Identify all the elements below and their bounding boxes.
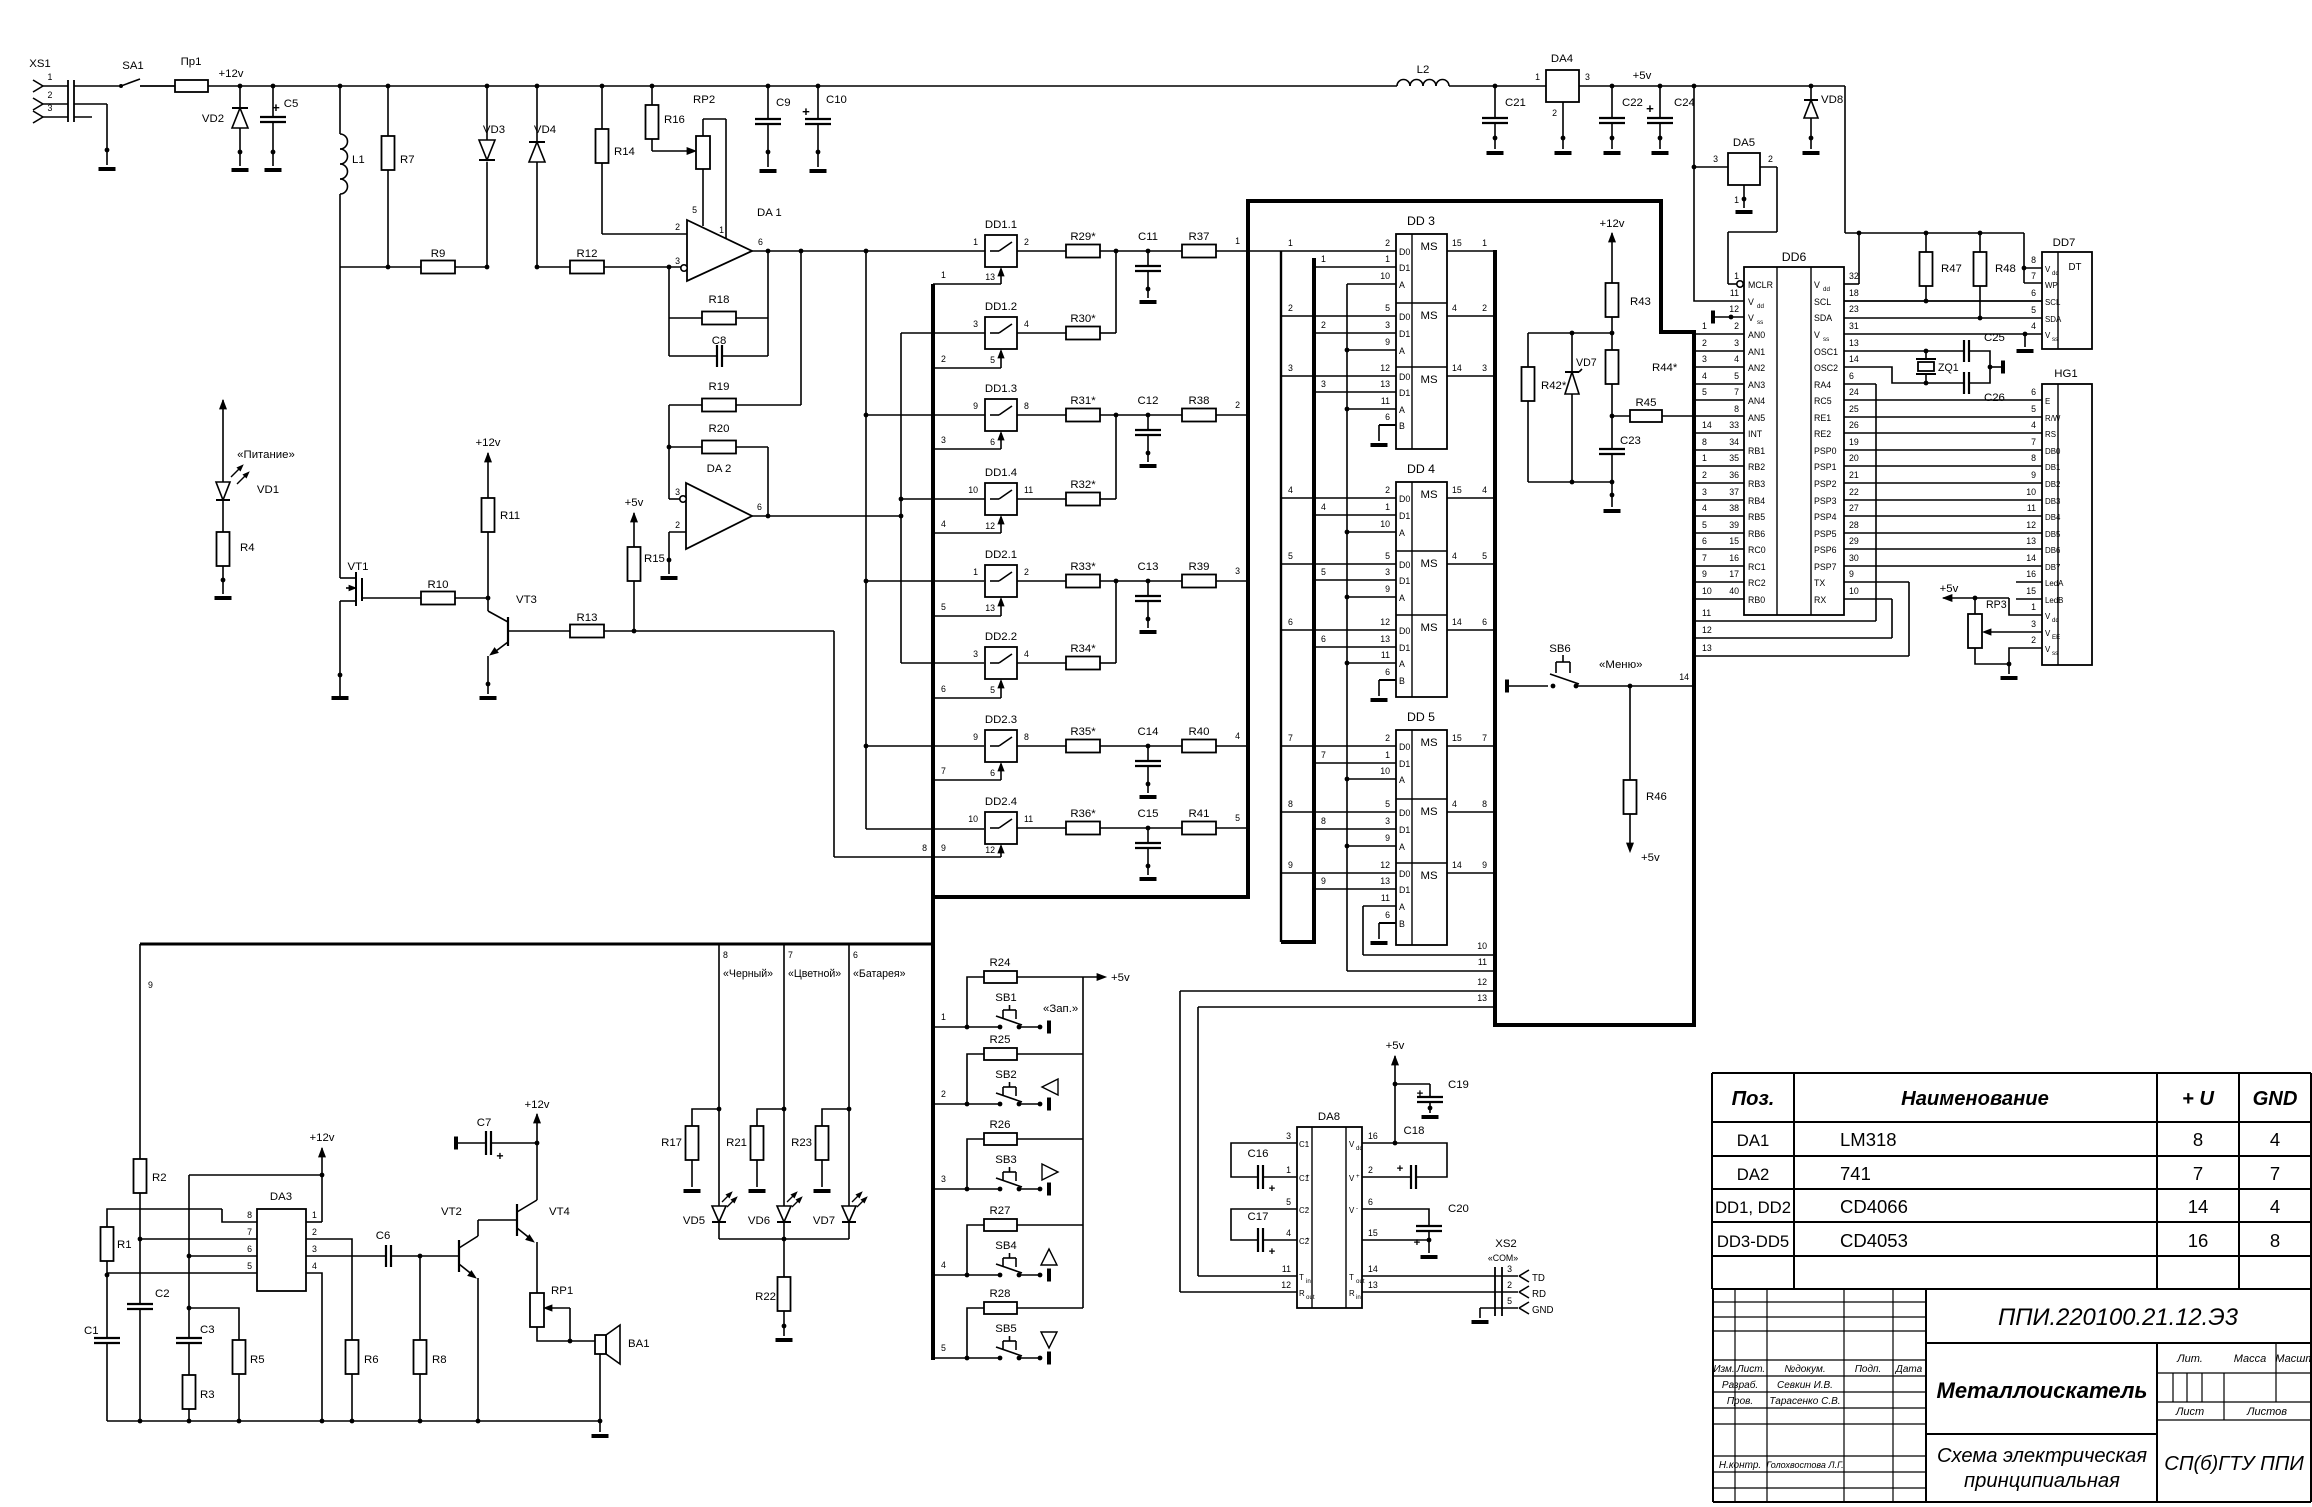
- svg-text:R34*: R34*: [1070, 643, 1096, 655]
- svg-text:R: R: [1349, 1289, 1355, 1298]
- svg-text:5: 5: [692, 205, 697, 215]
- svg-text:3: 3: [1482, 363, 1487, 373]
- svg-text:CD4066: CD4066: [1840, 1196, 1908, 1217]
- svg-text:9: 9: [973, 732, 978, 742]
- svg-text:1: 1: [1702, 453, 1707, 463]
- svg-text:10: 10: [968, 485, 978, 495]
- svg-text:VD1: VD1: [257, 484, 279, 496]
- svg-text:4: 4: [1702, 503, 1707, 513]
- svg-text:7: 7: [1482, 733, 1487, 743]
- svg-text:R15: R15: [644, 553, 665, 565]
- svg-text:3: 3: [312, 1244, 317, 1254]
- svg-text:C23: C23: [1620, 435, 1641, 447]
- svg-text:VD7: VD7: [1576, 357, 1597, 369]
- svg-text:VT1: VT1: [348, 561, 369, 573]
- svg-text:7: 7: [2193, 1163, 2203, 1184]
- svg-text:«Зап.»: «Зап.»: [1043, 1003, 1078, 1015]
- svg-text:5: 5: [1385, 303, 1390, 313]
- svg-text:AN2: AN2: [1748, 363, 1765, 373]
- svg-text:D1: D1: [1399, 511, 1410, 521]
- svg-text:2: 2: [1024, 237, 1029, 247]
- svg-text:V: V: [1814, 330, 1820, 340]
- svg-text:R42*: R42*: [1541, 380, 1567, 392]
- svg-text:MS: MS: [1420, 806, 1437, 818]
- svg-text:D0: D0: [1399, 626, 1410, 636]
- svg-text:«Цветной»: «Цветной»: [788, 968, 841, 980]
- svg-text:4: 4: [1734, 354, 1739, 364]
- svg-text:14: 14: [1679, 672, 1689, 682]
- svg-text:+5v: +5v: [1940, 583, 1959, 595]
- svg-text:9: 9: [1702, 569, 1707, 579]
- svg-text:C10: C10: [826, 94, 847, 106]
- svg-text:dd: dd: [1356, 1145, 1363, 1152]
- svg-text:9: 9: [1385, 833, 1390, 843]
- svg-text:7: 7: [2270, 1163, 2280, 1184]
- svg-text:DD3-DD5: DD3-DD5: [1717, 1232, 1789, 1251]
- svg-text:6: 6: [1321, 634, 1326, 644]
- svg-text:2: 2: [1368, 1165, 1373, 1175]
- svg-text:6: 6: [990, 437, 995, 447]
- svg-text:D1: D1: [1399, 263, 1410, 273]
- svg-text:R28: R28: [990, 1288, 1011, 1300]
- svg-text:DA3: DA3: [270, 1191, 292, 1203]
- svg-text:GND: GND: [2253, 1088, 2298, 1110]
- svg-text:1: 1: [941, 1012, 946, 1022]
- svg-text:MS: MS: [1420, 558, 1437, 570]
- svg-text:12: 12: [985, 845, 995, 855]
- svg-text:6: 6: [1368, 1197, 1373, 1207]
- svg-text:D1: D1: [1399, 825, 1410, 835]
- svg-text:2: 2: [1552, 108, 1557, 118]
- svg-text:9: 9: [2031, 470, 2036, 480]
- svg-text:D0: D0: [1399, 494, 1410, 504]
- svg-text:Дата: Дата: [1895, 1364, 1923, 1375]
- svg-text:VD6: VD6: [748, 1215, 770, 1227]
- svg-text:1: 1: [2031, 602, 2036, 612]
- svg-text:3: 3: [675, 256, 680, 266]
- svg-text:33: 33: [1729, 420, 1739, 430]
- svg-text:6: 6: [757, 502, 762, 512]
- svg-text:Лист.: Лист.: [1736, 1364, 1765, 1375]
- svg-text:R7: R7: [400, 154, 415, 166]
- svg-text:10: 10: [1702, 586, 1712, 596]
- svg-text:3: 3: [1286, 1131, 1291, 1141]
- svg-text:2: 2: [1385, 485, 1390, 495]
- svg-text:+12v: +12v: [524, 1099, 549, 1111]
- svg-text:V: V: [2045, 331, 2051, 340]
- svg-text:1: 1: [719, 225, 724, 235]
- svg-text:11: 11: [1024, 485, 1033, 495]
- svg-text:Масшт: Масшт: [2275, 1353, 2312, 1365]
- svg-text:8: 8: [247, 1210, 252, 1220]
- svg-text:10: 10: [1380, 766, 1390, 776]
- svg-text:+: +: [1414, 1237, 1421, 1249]
- svg-text:V: V: [2045, 265, 2051, 274]
- svg-text:+5v: +5v: [1633, 70, 1652, 82]
- svg-text:R4: R4: [240, 542, 255, 554]
- svg-text:22: 22: [1849, 487, 1859, 497]
- svg-text:R33*: R33*: [1070, 561, 1096, 573]
- svg-text:R11: R11: [500, 510, 520, 522]
- svg-text:R24: R24: [990, 957, 1011, 969]
- svg-text:№докум.: №докум.: [1784, 1364, 1825, 1375]
- svg-text:10: 10: [1380, 271, 1390, 281]
- svg-text:AN5: AN5: [1748, 413, 1765, 423]
- svg-text:12: 12: [1380, 617, 1390, 627]
- svg-text:9: 9: [1321, 876, 1326, 886]
- svg-text:A: A: [1399, 280, 1405, 290]
- svg-text:4: 4: [1235, 731, 1240, 741]
- svg-text:DB1: DB1: [2045, 463, 2060, 472]
- svg-text:-: -: [1306, 1205, 1308, 1212]
- svg-text:C6: C6: [376, 1230, 391, 1242]
- svg-text:C5: C5: [284, 98, 299, 110]
- svg-text:V: V: [2045, 612, 2051, 621]
- svg-text:1: 1: [1288, 238, 1293, 248]
- svg-text:V: V: [2045, 645, 2051, 654]
- svg-text:+12v: +12v: [1599, 218, 1624, 230]
- svg-text:R1: R1: [117, 1239, 132, 1251]
- svg-text:C20: C20: [1448, 1203, 1469, 1215]
- svg-text:8: 8: [1288, 799, 1293, 809]
- svg-text:6: 6: [941, 684, 946, 694]
- svg-text:A: A: [1399, 405, 1405, 415]
- svg-text:5: 5: [1321, 567, 1326, 577]
- svg-text:7: 7: [788, 950, 793, 960]
- svg-text:R22: R22: [755, 1291, 776, 1303]
- svg-text:+: +: [1417, 1088, 1424, 1100]
- svg-text:RP2: RP2: [693, 94, 715, 106]
- svg-text:3: 3: [1385, 567, 1390, 577]
- svg-text:16: 16: [1729, 553, 1739, 563]
- svg-text:13: 13: [1380, 379, 1390, 389]
- svg-text:11: 11: [1381, 396, 1390, 406]
- svg-text:1: 1: [48, 72, 53, 82]
- svg-text:R: R: [1299, 1289, 1305, 1298]
- svg-text:1: 1: [1235, 236, 1240, 246]
- svg-text:+: +: [1269, 1246, 1276, 1258]
- svg-text:DT: DT: [2069, 262, 2082, 273]
- svg-text:RB5: RB5: [1748, 512, 1765, 522]
- svg-text:5: 5: [1288, 551, 1293, 561]
- svg-text:12: 12: [1281, 1280, 1291, 1290]
- svg-text:PSP4: PSP4: [1814, 512, 1837, 522]
- svg-text:SB3: SB3: [995, 1154, 1017, 1166]
- svg-text:13: 13: [985, 603, 995, 613]
- svg-text:14: 14: [1849, 354, 1859, 364]
- svg-text:E: E: [2045, 397, 2050, 406]
- svg-text:DD 5: DD 5: [1407, 710, 1435, 724]
- svg-text:+12v: +12v: [309, 1132, 334, 1144]
- svg-text:Подп.: Подп.: [1855, 1364, 1882, 1375]
- svg-text:27: 27: [1849, 503, 1859, 513]
- svg-text:+5v: +5v: [1641, 852, 1660, 864]
- svg-text:out: out: [1306, 1294, 1315, 1301]
- svg-text:13: 13: [1477, 993, 1487, 1003]
- svg-text:DA4: DA4: [1551, 53, 1573, 65]
- svg-text:T: T: [1299, 1273, 1304, 1282]
- svg-text:RA4: RA4: [1814, 380, 1831, 390]
- svg-text:6: 6: [2031, 387, 2036, 397]
- svg-text:C24: C24: [1674, 97, 1695, 109]
- svg-text:3: 3: [1321, 379, 1326, 389]
- svg-text:D0: D0: [1399, 312, 1410, 322]
- svg-text:11: 11: [1730, 288, 1739, 298]
- svg-text:PSP6: PSP6: [1814, 545, 1837, 555]
- svg-text:11: 11: [1024, 814, 1033, 824]
- svg-text:2: 2: [1385, 733, 1390, 743]
- svg-text:DD 4: DD 4: [1407, 462, 1435, 476]
- svg-text:R18: R18: [709, 294, 730, 306]
- svg-text:DD1, DD2: DD1, DD2: [1715, 1198, 1791, 1217]
- svg-text:R45: R45: [1636, 397, 1657, 409]
- svg-text:3: 3: [941, 1174, 946, 1184]
- svg-text:VT2: VT2: [441, 1206, 462, 1218]
- svg-text:OSC2: OSC2: [1814, 363, 1838, 373]
- svg-text:R13: R13: [577, 612, 598, 624]
- svg-text:5: 5: [1507, 1296, 1512, 1306]
- svg-text:RB1: RB1: [1748, 446, 1765, 456]
- svg-text:dd: dd: [1823, 286, 1830, 293]
- svg-text:7: 7: [2031, 437, 2036, 447]
- svg-text:СП(б)ГТУ ППИ: СП(б)ГТУ ППИ: [2164, 1453, 2304, 1475]
- svg-text:4: 4: [1288, 485, 1293, 495]
- svg-text:19: 19: [1849, 437, 1859, 447]
- svg-text:Металлоискатель: Металлоискатель: [1937, 1378, 2148, 1403]
- svg-text:2: 2: [675, 222, 680, 232]
- svg-text:SA1: SA1: [122, 60, 144, 72]
- svg-text:R19: R19: [709, 381, 730, 393]
- svg-text:17: 17: [1729, 569, 1739, 579]
- svg-text:V: V: [2045, 629, 2051, 638]
- svg-text:8: 8: [1734, 404, 1739, 414]
- svg-text:DB0: DB0: [2045, 447, 2061, 456]
- svg-text:9: 9: [1385, 584, 1390, 594]
- svg-text:VT4: VT4: [549, 1206, 570, 1218]
- svg-text:EE: EE: [2052, 634, 2060, 641]
- svg-text:MS: MS: [1420, 870, 1437, 882]
- svg-text:+: +: [1306, 1236, 1310, 1243]
- svg-text:A: A: [1399, 528, 1405, 538]
- svg-text:4: 4: [1286, 1228, 1291, 1238]
- svg-text:TD: TD: [1532, 1273, 1545, 1284]
- svg-text:RE1: RE1: [1814, 413, 1831, 423]
- svg-text:SB5: SB5: [995, 1323, 1017, 1335]
- svg-text:R6: R6: [364, 1354, 379, 1366]
- svg-text:C26: C26: [1984, 392, 2005, 404]
- svg-text:SCL: SCL: [1814, 297, 1831, 307]
- svg-text:8: 8: [723, 950, 728, 960]
- svg-text:DA5: DA5: [1733, 137, 1755, 149]
- svg-text:MS: MS: [1420, 310, 1437, 322]
- svg-text:4: 4: [1321, 502, 1326, 512]
- svg-text:CD4053: CD4053: [1840, 1230, 1908, 1251]
- svg-text:Пр1: Пр1: [181, 56, 202, 68]
- svg-text:2: 2: [1702, 338, 1707, 348]
- svg-text:+ U: + U: [2182, 1088, 2214, 1110]
- svg-text:C9: C9: [776, 97, 791, 109]
- svg-text:12: 12: [1380, 363, 1390, 373]
- svg-text:28: 28: [1849, 520, 1859, 530]
- svg-text:1: 1: [1734, 271, 1739, 281]
- svg-text:38: 38: [1729, 503, 1739, 513]
- svg-text:V: V: [1349, 1206, 1355, 1215]
- svg-text:DB3: DB3: [2045, 497, 2061, 506]
- svg-text:C12: C12: [1138, 395, 1159, 407]
- svg-text:2: 2: [1702, 470, 1707, 480]
- svg-text:7: 7: [1734, 387, 1739, 397]
- svg-text:C8: C8: [712, 335, 727, 347]
- svg-text:D1: D1: [1399, 759, 1410, 769]
- svg-text:8: 8: [922, 843, 927, 853]
- svg-text:3: 3: [1585, 72, 1590, 82]
- svg-text:12: 12: [1729, 304, 1739, 314]
- svg-text:TX: TX: [1814, 578, 1825, 588]
- svg-text:13: 13: [1368, 1280, 1378, 1290]
- svg-text:DA1: DA1: [1737, 1131, 1769, 1150]
- svg-text:D1: D1: [1399, 576, 1410, 586]
- svg-text:R5: R5: [250, 1354, 265, 1366]
- svg-text:A: A: [1399, 659, 1405, 669]
- svg-text:R39: R39: [1189, 561, 1210, 573]
- svg-text:+: +: [1397, 1163, 1404, 1175]
- svg-text:PSP0: PSP0: [1814, 446, 1837, 456]
- svg-text:R31*: R31*: [1070, 395, 1096, 407]
- svg-text:2: 2: [941, 1089, 946, 1099]
- svg-text:5: 5: [990, 685, 995, 695]
- svg-text:Масса: Масса: [2234, 1353, 2267, 1365]
- svg-text:14: 14: [2188, 1196, 2209, 1217]
- svg-text:R36*: R36*: [1070, 808, 1096, 820]
- svg-text:14: 14: [1452, 363, 1462, 373]
- svg-text:9: 9: [1288, 860, 1293, 870]
- svg-text:PSP1: PSP1: [1814, 462, 1837, 472]
- svg-text:35: 35: [1729, 453, 1739, 463]
- svg-text:DB2: DB2: [2045, 480, 2060, 489]
- svg-text:R35*: R35*: [1070, 726, 1096, 738]
- svg-text:5: 5: [1385, 799, 1390, 809]
- svg-text:16: 16: [1368, 1131, 1378, 1141]
- svg-text:C2: C2: [155, 1288, 170, 1300]
- svg-text:XS1: XS1: [29, 58, 51, 70]
- svg-text:VD8: VD8: [1821, 94, 1843, 106]
- svg-text:C14: C14: [1138, 726, 1159, 738]
- svg-text:SB4: SB4: [995, 1240, 1017, 1252]
- svg-text:Листов: Листов: [2246, 1406, 2287, 1418]
- svg-text:2: 2: [1482, 303, 1487, 313]
- svg-text:4: 4: [312, 1261, 317, 1271]
- svg-text:Лит.: Лит.: [2176, 1353, 2203, 1365]
- svg-text:R23: R23: [791, 1137, 812, 1149]
- svg-text:5: 5: [1482, 551, 1487, 561]
- svg-text:R27: R27: [990, 1205, 1011, 1217]
- svg-text:PSP5: PSP5: [1814, 529, 1837, 539]
- svg-text:VD5: VD5: [683, 1215, 705, 1227]
- svg-text:29: 29: [1849, 536, 1859, 546]
- svg-text:R21: R21: [726, 1137, 747, 1149]
- svg-text:A: A: [1399, 842, 1405, 852]
- svg-text:24: 24: [1849, 387, 1859, 397]
- svg-text:R3: R3: [200, 1389, 215, 1401]
- svg-text:«Черный»: «Черный»: [723, 968, 773, 980]
- svg-text:4: 4: [2031, 420, 2036, 430]
- svg-text:R29*: R29*: [1070, 231, 1096, 243]
- svg-text:VD7: VD7: [813, 1215, 835, 1227]
- svg-text:3: 3: [1235, 566, 1240, 576]
- svg-text:«Меню»: «Меню»: [1599, 659, 1642, 671]
- svg-text:1: 1: [1734, 195, 1739, 205]
- svg-text:5: 5: [1286, 1197, 1291, 1207]
- svg-text:2: 2: [48, 90, 53, 100]
- svg-text:1: 1: [1385, 750, 1390, 760]
- svg-text:1: 1: [973, 237, 978, 247]
- svg-text:4: 4: [2031, 321, 2036, 331]
- svg-text:8: 8: [2270, 1230, 2280, 1251]
- svg-text:XS2: XS2: [1495, 1238, 1517, 1250]
- svg-text:13: 13: [1380, 876, 1390, 886]
- svg-text:DD2.1: DD2.1: [985, 549, 1017, 561]
- svg-text:RC5: RC5: [1814, 396, 1832, 406]
- svg-text:D1: D1: [1399, 388, 1410, 398]
- svg-text:36: 36: [1729, 470, 1739, 480]
- svg-text:741: 741: [1840, 1163, 1871, 1184]
- svg-text:4: 4: [1024, 649, 1029, 659]
- svg-text:SDA: SDA: [2045, 315, 2062, 324]
- svg-text:12: 12: [985, 521, 995, 531]
- svg-text:V: V: [1814, 280, 1820, 290]
- svg-text:2: 2: [1734, 321, 1739, 331]
- svg-text:5: 5: [1734, 371, 1739, 381]
- svg-text:13: 13: [1380, 634, 1390, 644]
- svg-text:ZQ1: ZQ1: [1938, 362, 1959, 374]
- svg-text:31: 31: [1849, 321, 1859, 331]
- svg-text:4: 4: [1452, 551, 1457, 561]
- svg-text:32: 32: [1849, 271, 1859, 281]
- svg-text:B: B: [1399, 421, 1405, 431]
- svg-text:23: 23: [1849, 304, 1859, 314]
- svg-text:4: 4: [2270, 1129, 2280, 1150]
- svg-text:10: 10: [1380, 519, 1390, 529]
- svg-text:T: T: [1349, 1273, 1354, 1282]
- svg-text:Голохвостова Л.Г.: Голохвостова Л.Г.: [1766, 1460, 1843, 1470]
- svg-text:D0: D0: [1399, 247, 1410, 257]
- svg-text:7: 7: [247, 1227, 252, 1237]
- svg-text:RP3: RP3: [1986, 599, 2007, 611]
- svg-text:34: 34: [1729, 437, 1739, 447]
- svg-text:3: 3: [973, 319, 978, 329]
- svg-text:RB3: RB3: [1748, 479, 1765, 489]
- svg-text:R/W: R/W: [2045, 414, 2061, 423]
- svg-text:A: A: [1399, 902, 1405, 912]
- svg-text:C1: C1: [84, 1325, 99, 1337]
- svg-text:7: 7: [1702, 553, 1707, 563]
- svg-text:C13: C13: [1138, 561, 1159, 573]
- svg-text:AN3: AN3: [1748, 380, 1765, 390]
- svg-text:8: 8: [1482, 799, 1487, 809]
- svg-text:9: 9: [1482, 860, 1487, 870]
- svg-text:DA 2: DA 2: [707, 463, 732, 475]
- svg-text:DD1.3: DD1.3: [985, 383, 1017, 395]
- svg-text:3: 3: [973, 649, 978, 659]
- svg-text:RP1: RP1: [551, 1285, 573, 1297]
- svg-text:D0: D0: [1399, 372, 1410, 382]
- svg-text:R25: R25: [990, 1034, 1011, 1046]
- svg-text:30: 30: [1849, 553, 1859, 563]
- svg-text:R20: R20: [709, 423, 730, 435]
- svg-text:6: 6: [990, 768, 995, 778]
- svg-text:7: 7: [941, 766, 946, 776]
- svg-text:3: 3: [1288, 363, 1293, 373]
